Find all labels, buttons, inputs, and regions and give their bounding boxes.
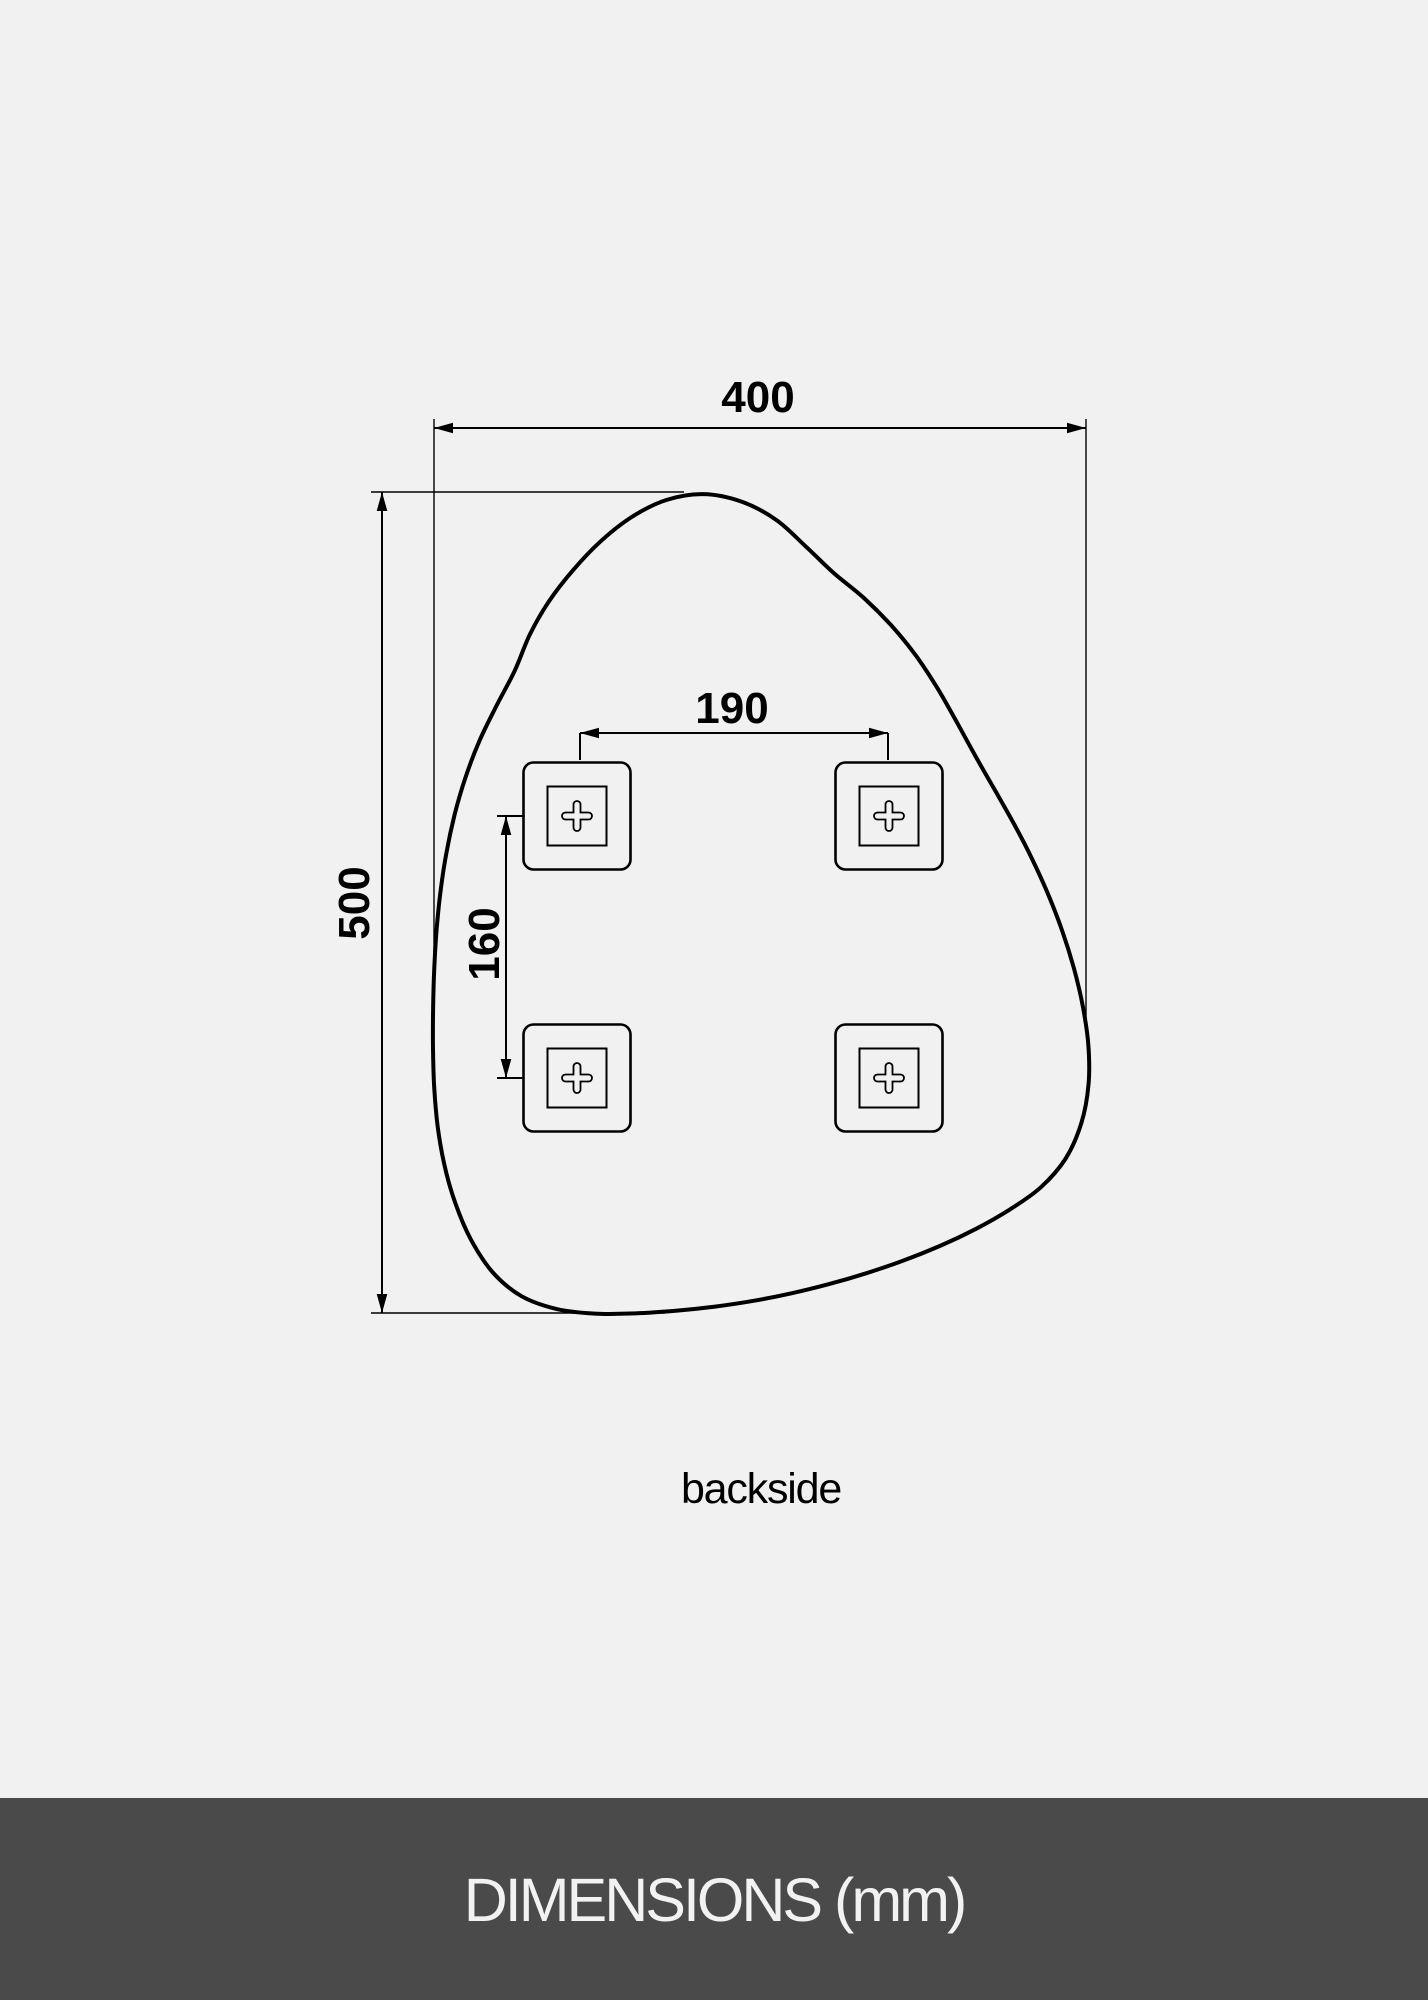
svg-text:160: 160 [460, 907, 509, 980]
svg-text:190: 190 [695, 684, 768, 733]
svg-text:DIMENSIONS (mm): DIMENSIONS (mm) [464, 1866, 965, 1934]
svg-text:400: 400 [721, 373, 794, 422]
svg-text:backside: backside [681, 1465, 841, 1513]
svg-text:500: 500 [330, 866, 379, 939]
